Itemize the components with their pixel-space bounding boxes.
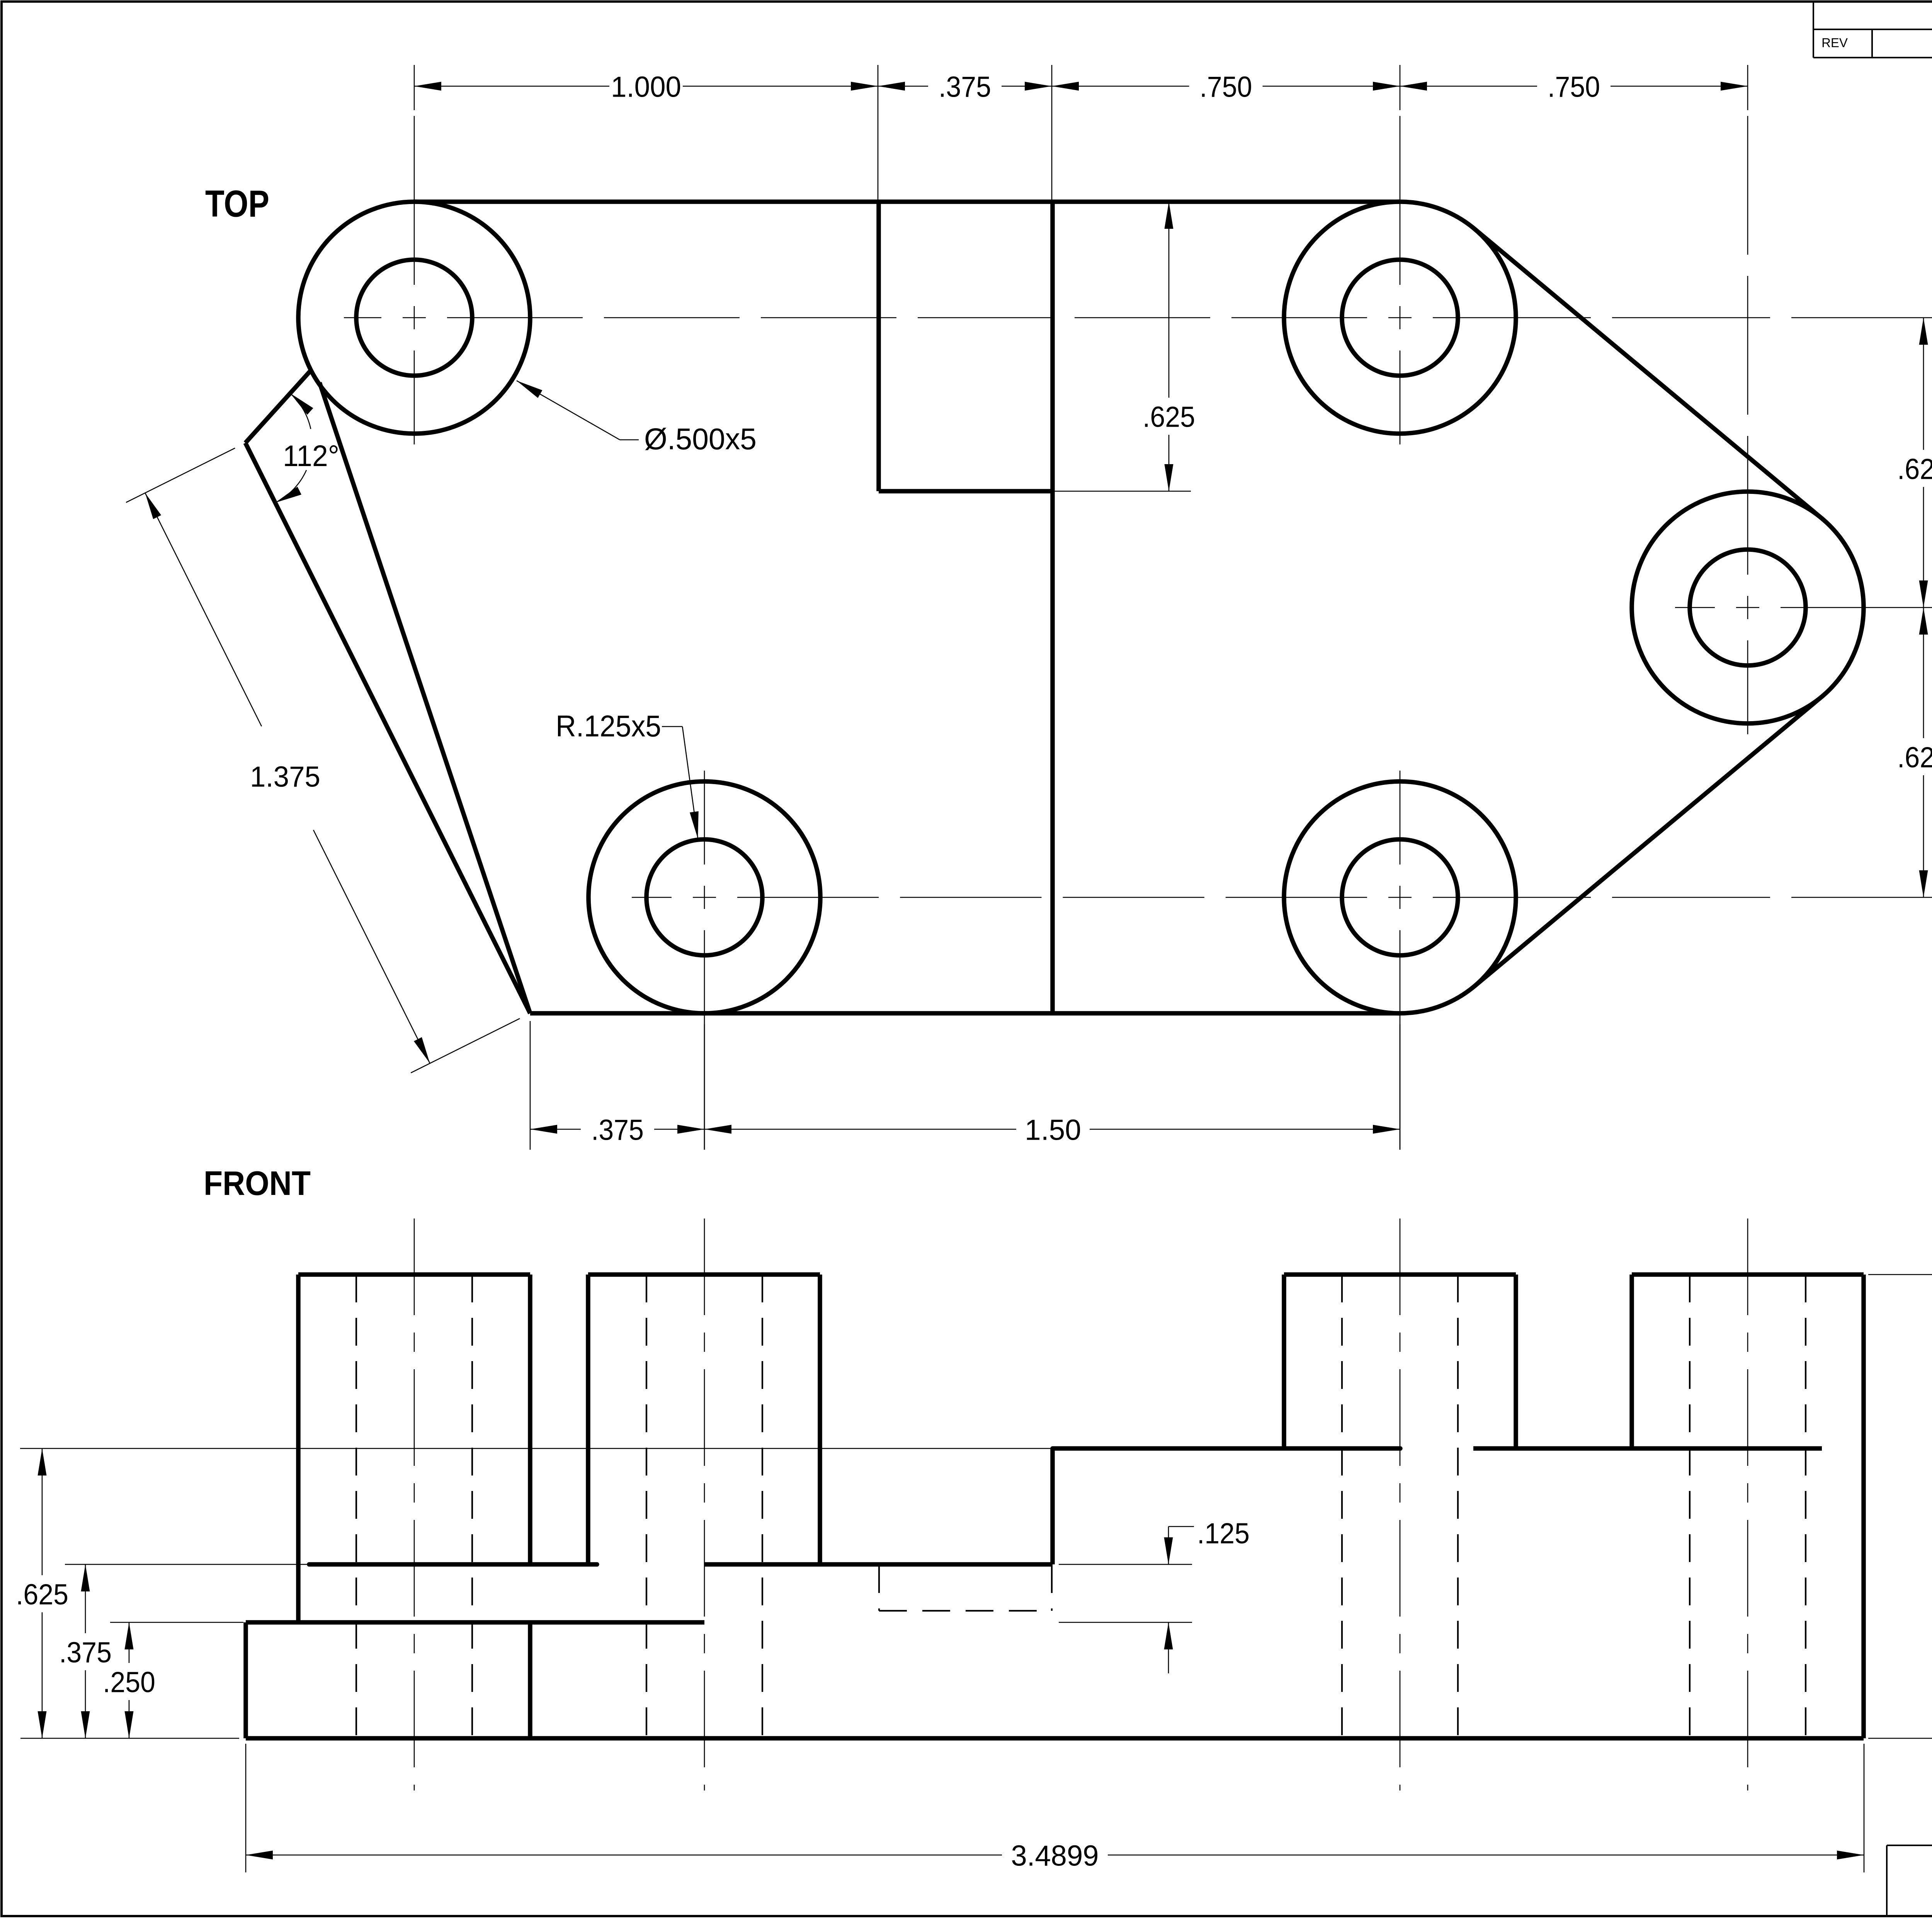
svg-text:TOP: TOP [205,182,269,225]
svg-text:3.4899: 3.4899 [1011,1839,1099,1872]
svg-text:REV: REV [1821,36,1848,50]
svg-text:1.000: 1.000 [611,70,681,103]
svg-text:.750: .750 [1548,70,1600,103]
svg-text:Ø.500x5: Ø.500x5 [644,422,757,456]
svg-text:1.375: 1.375 [250,760,320,793]
svg-text:.625: .625 [1897,741,1932,773]
svg-text:.625: .625 [16,1578,68,1610]
svg-text:.625: .625 [1897,453,1932,485]
svg-text:.625: .625 [1143,400,1195,433]
svg-text:112°: 112° [283,439,339,473]
svg-text:.125: .125 [1197,1517,1250,1549]
svg-text:.375: .375 [59,1636,112,1668]
svg-text:.250: .250 [103,1666,155,1698]
svg-text:.375: .375 [591,1113,644,1146]
svg-text:R.125x5: R.125x5 [556,709,661,743]
svg-text:FRONT: FRONT [204,1164,311,1202]
svg-text:.750: .750 [1200,70,1252,103]
svg-text:.375: .375 [939,70,991,103]
svg-text:1.50: 1.50 [1025,1113,1081,1146]
